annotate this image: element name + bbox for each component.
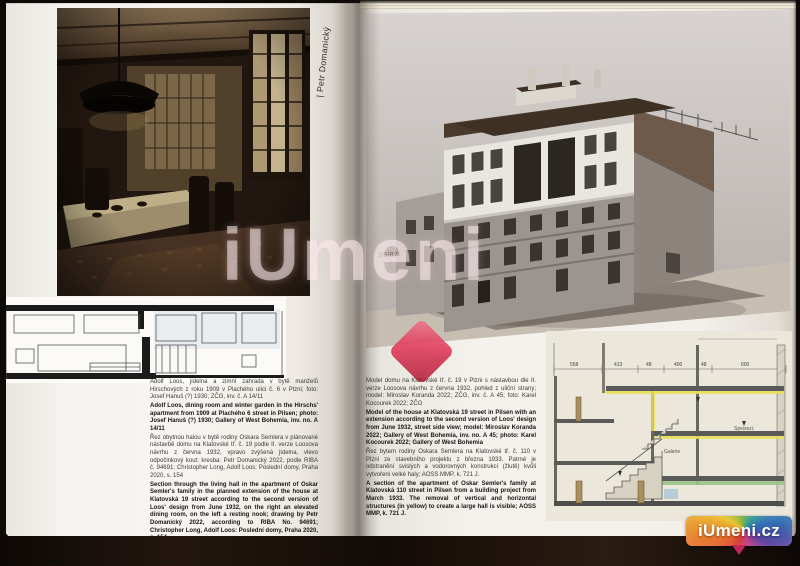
caption-cs: Řez bytem rodiny Oskara Semlera na Klato… <box>366 449 536 480</box>
dim-label: 600 <box>741 362 750 368</box>
caption-en: A section of the apartment of Oskar Seml… <box>366 481 536 519</box>
plan-section-drawing <box>4 297 286 383</box>
table-edge-right <box>793 0 800 566</box>
model-photo <box>366 10 790 348</box>
caption-cs: Model domu na Klatovské tř. č. 19 v Plzn… <box>366 378 536 409</box>
room-label: Speisezi. <box>734 426 754 432</box>
dim-label: 48 <box>701 362 707 368</box>
dim-label: 558 <box>570 362 579 368</box>
iumeni-logo-label: iUmeni.cz <box>698 521 780 541</box>
table-edge-top <box>0 0 800 4</box>
dim-label: 48 <box>646 362 652 368</box>
dim-label: 400 <box>674 362 683 368</box>
caption-cs: Řez obytnou halou v bytě rodiny Oskara S… <box>150 435 318 481</box>
right-caption-block: Model domu na Klatovské tř. č. 19 v Plzn… <box>366 378 536 520</box>
room-label: Galerie <box>664 449 680 455</box>
building-section-drawing: 558 413 48 400 48 600 <box>546 331 792 521</box>
left-caption-block: Adolf Loos, jídelna a zimní zahrada v by… <box>150 379 318 544</box>
wood-table-surface <box>0 536 800 566</box>
caption-en: Adolf Loos, dining room and winter garde… <box>150 403 318 434</box>
table-edge-left <box>0 0 6 566</box>
iumeni-logo-badge: iUmeni.cz <box>686 516 792 546</box>
caption-en: Model of the house at Klatovská 19 stree… <box>366 410 536 448</box>
dim-label: 413 <box>614 362 623 368</box>
caption-en: Section through the living hall in the a… <box>150 482 318 543</box>
interior-photo <box>57 8 310 296</box>
page-number: 86|87 <box>379 252 398 259</box>
caption-cs: Adolf Loos, jídelna a zimní zahrada v by… <box>150 379 318 402</box>
book-photo-scene: Adolf Loos, jídelna a zimní zahrada v by… <box>0 0 800 566</box>
